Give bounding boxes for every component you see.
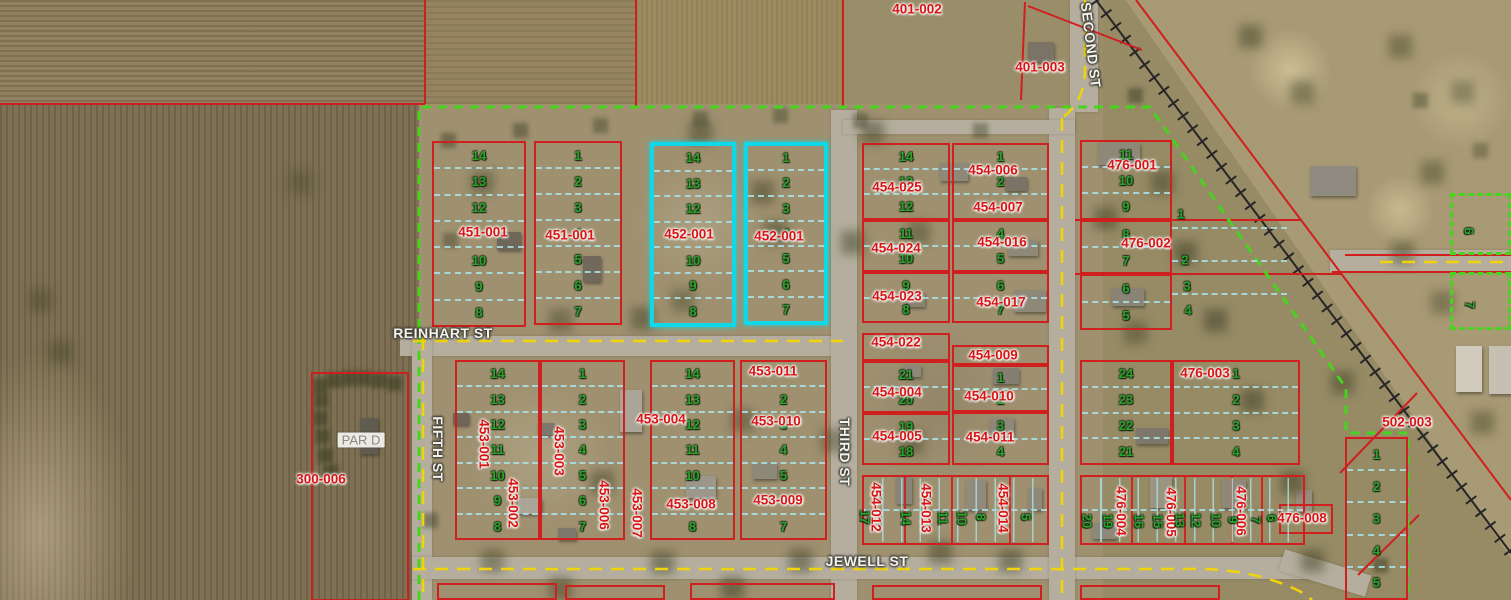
- lot-number: 6: [579, 493, 586, 508]
- parcel-block[interactable]: 65: [1080, 274, 1172, 330]
- parcel-block[interactable]: [565, 585, 665, 600]
- lot-row: 7: [742, 513, 825, 538]
- lot-number: 9: [1226, 516, 1241, 523]
- parcel-id-label[interactable]: 454-023: [872, 289, 922, 304]
- parcel-id-label[interactable]: 401-003: [1015, 60, 1065, 75]
- parcel-block[interactable]: [1080, 585, 1220, 600]
- parcel-id-label[interactable]: 451-001: [458, 225, 508, 240]
- lot-row: 9: [1082, 192, 1170, 218]
- lot-number: 14: [899, 149, 913, 164]
- parcel-id-label[interactable]: 476-006: [1234, 486, 1249, 536]
- parcel-id-label[interactable]: 300-006: [296, 472, 346, 487]
- lot-row: 3: [748, 195, 824, 220]
- parcel-id-label[interactable]: 454-006: [968, 163, 1018, 178]
- lot-row: 1: [748, 146, 824, 169]
- lot-row: 11: [652, 436, 733, 461]
- street-name-label: FIFTH ST: [430, 416, 446, 481]
- parcel-id-label[interactable]: 454-010: [964, 389, 1014, 404]
- parcel-id-label[interactable]: 453-002: [506, 478, 521, 528]
- parcel-id-label[interactable]: 453-009: [753, 493, 803, 508]
- lot-row: 5: [742, 462, 825, 487]
- lot-number: 3: [1232, 418, 1239, 433]
- lot-number: 9: [494, 493, 501, 508]
- lot-number: 18: [899, 444, 913, 459]
- parcel-id-label[interactable]: 452-001: [754, 229, 804, 244]
- lot-row: 6: [536, 271, 620, 297]
- lot-row: 8: [457, 513, 538, 538]
- lot-number: 8: [689, 519, 696, 534]
- lot-row: 2: [1174, 386, 1298, 412]
- lot-number: 7: [1122, 253, 1129, 268]
- lot-number: 12: [1189, 513, 1204, 527]
- parcel-id-label[interactable]: 454-016: [977, 235, 1027, 250]
- parcel-block[interactable]: 12345: [1345, 437, 1408, 600]
- lot-number: 7: [579, 519, 586, 534]
- lot-number: 12: [490, 417, 504, 432]
- lot-number: 14: [899, 511, 914, 525]
- lot-row: 12: [434, 194, 524, 220]
- lot-row: 6: [748, 270, 824, 295]
- lot-row: 12: [457, 411, 538, 436]
- parcel-block[interactable]: 23457: [740, 360, 827, 540]
- parcel-id-label[interactable]: 476-003: [1180, 366, 1230, 381]
- lot-number: 16: [1132, 514, 1147, 528]
- parcel-id-label[interactable]: 454-024: [871, 241, 921, 256]
- lot-row: 14: [652, 362, 733, 385]
- lot-number: 4: [1373, 543, 1380, 558]
- lot-number: 7: [780, 519, 787, 534]
- lot-number: 3: [574, 200, 581, 215]
- lot-number: 2: [579, 392, 586, 407]
- parcel-id-label[interactable]: 502-003: [1382, 415, 1432, 430]
- parcel-block[interactable]: 14131211108: [650, 360, 735, 540]
- lot-number: 13: [472, 174, 486, 189]
- parcel-id-label[interactable]: 476-001: [1107, 158, 1157, 173]
- lot-number: 1: [579, 366, 586, 381]
- lot-number: 14: [686, 150, 700, 165]
- lot-number: 10: [472, 253, 486, 268]
- lot-number: 10: [685, 468, 699, 483]
- parcel-block[interactable]: [437, 583, 557, 600]
- lot-row: 6: [1082, 276, 1170, 301]
- lot-number: 7: [574, 304, 581, 319]
- lot-number: 10: [1209, 513, 1224, 527]
- lot-number: 23: [1119, 392, 1133, 407]
- lot-row: 5: [748, 245, 824, 270]
- lot-row: 12: [654, 195, 732, 221]
- lot-number: 12: [899, 199, 913, 214]
- lot-number: 20: [1080, 514, 1095, 528]
- parcel-id-label[interactable]: 453-011: [749, 364, 798, 379]
- lot-number: 5: [1019, 513, 1034, 520]
- lot-row: 13: [434, 167, 524, 193]
- lot-number: 8: [974, 513, 989, 520]
- lot-number: 14: [685, 366, 699, 381]
- lot-number: 2: [782, 175, 789, 190]
- lot-number: 2: [1181, 253, 1188, 268]
- parcel-id-label[interactable]: 453-006: [597, 480, 612, 530]
- lot-number: 2: [1373, 479, 1380, 494]
- street-name-label: REINHART ST: [393, 325, 493, 341]
- lot-row: 10: [652, 462, 733, 487]
- parcel-id-label[interactable]: 454-009: [968, 348, 1018, 363]
- parcel-id-label[interactable]: 453-001: [477, 419, 492, 469]
- lot-row: 11: [457, 436, 538, 461]
- lot-row: 2: [742, 385, 825, 410]
- lot-row: 21: [864, 363, 948, 386]
- lot-number: 6: [782, 277, 789, 292]
- lot-number: 12: [686, 201, 700, 216]
- map-canvas[interactable]: 1413121098123456714131210981234567141312…: [0, 0, 1511, 600]
- parcel-id-label[interactable]: 454-017: [976, 295, 1026, 310]
- lot-number: 11: [686, 442, 700, 457]
- parcel-id-label[interactable]: 453-003: [552, 426, 567, 476]
- parcel-id-label[interactable]: 454-005: [872, 429, 922, 444]
- lot-row: 3: [536, 193, 620, 219]
- parcel-block[interactable]: 141312111098: [455, 360, 540, 540]
- lot-number: 13: [1173, 513, 1188, 527]
- lot-number: 6: [1122, 281, 1129, 296]
- lot-number: 14: [490, 366, 504, 381]
- lot-number: 5: [782, 251, 789, 266]
- lot-number: 6: [1265, 514, 1280, 521]
- lot-row: 21: [1082, 437, 1170, 463]
- lot-number: 13: [490, 392, 504, 407]
- lot-number: 24: [1119, 366, 1133, 381]
- lot-number: 4: [579, 442, 586, 457]
- lot-row: 7: [748, 296, 824, 321]
- parcel-block[interactable]: 11109: [1080, 140, 1172, 220]
- lot-number: 10: [955, 511, 970, 525]
- lot-number: 10: [1119, 173, 1133, 188]
- parcel-id-label[interactable]: 401-002: [892, 2, 942, 17]
- lot-number: 9: [689, 278, 696, 293]
- parcel-id-label[interactable]: 454-022: [871, 335, 921, 350]
- lot-number: 9: [1122, 199, 1129, 214]
- lot-row: [1172, 196, 1287, 227]
- lot-number: 1: [1373, 447, 1380, 462]
- lot-row: 3: [1347, 501, 1406, 533]
- lot-number: 7: [1249, 516, 1264, 523]
- lot-number: 4: [780, 442, 787, 457]
- parcel-id-label[interactable]: 454-014: [996, 483, 1011, 533]
- parcel-block[interactable]: 24232221: [1080, 360, 1172, 465]
- lot-number: 10: [490, 468, 504, 483]
- lot-number: 22: [1119, 418, 1133, 433]
- lot-row: 2: [536, 167, 620, 193]
- parcel-id-label[interactable]: 476-002: [1121, 236, 1171, 251]
- lot-number: 8: [475, 305, 482, 320]
- lot-number: 1: [997, 370, 1004, 385]
- lot-number: 3: [782, 201, 789, 216]
- lot-number: 4: [1184, 303, 1191, 318]
- lot-row: 8: [654, 297, 732, 323]
- lot-row: 9: [457, 487, 538, 512]
- lot-number: 13: [685, 392, 699, 407]
- parcel-overlay-layer: 1413121098123456714131210981234567141312…: [0, 0, 1511, 600]
- lot-number: 1: [1232, 366, 1239, 381]
- area-label: PAR D: [338, 433, 385, 448]
- lot-number: 7: [782, 302, 789, 317]
- lot-number: 4: [1232, 444, 1239, 459]
- lot-row: 14: [434, 143, 524, 167]
- lot-row: 4: [1347, 534, 1406, 566]
- lot-number: 3: [579, 417, 586, 432]
- lot-number: 2: [780, 392, 787, 407]
- parcel-id-label[interactable]: 476-004: [1114, 486, 1129, 536]
- street-name-label: THIRD ST: [837, 418, 853, 487]
- lot-row: 6: [954, 274, 1047, 297]
- lot-row: 4: [742, 436, 825, 461]
- lot-row: 14: [654, 146, 732, 170]
- lot-number: 4: [997, 444, 1004, 459]
- lot-row: 3: [1174, 412, 1298, 438]
- lot-number: 10: [686, 253, 700, 268]
- parcel-id-label[interactable]: 451-001: [545, 228, 595, 243]
- lot-number: 12: [685, 417, 699, 432]
- lot-number: 11: [491, 442, 505, 457]
- lot-number: 8: [902, 302, 909, 317]
- lot-row: 9: [654, 272, 732, 298]
- parcel-id-label[interactable]: 454-012: [869, 482, 884, 532]
- lot-number: 14: [472, 148, 486, 163]
- lot-number: 21: [1119, 444, 1133, 459]
- parcel-id-label[interactable]: 454-007: [973, 200, 1023, 215]
- parcel-block[interactable]: [1450, 272, 1511, 330]
- parcel-id-label[interactable]: 453-008: [666, 497, 716, 512]
- lot-number: 5: [579, 468, 586, 483]
- lot-number: 1: [1177, 207, 1184, 222]
- lot-number: 2: [574, 174, 581, 189]
- lot-number: 15: [1151, 514, 1166, 528]
- parcel-block[interactable]: [1450, 193, 1511, 255]
- lot-number: 17: [858, 510, 873, 524]
- lot-row: 1: [954, 367, 1047, 388]
- lot-row: 5: [536, 245, 620, 271]
- lot-number: 2: [1232, 392, 1239, 407]
- lot-number: 19: [1101, 514, 1116, 528]
- lot-row: 1: [542, 362, 623, 385]
- parcel-id-label[interactable]: 454-013: [919, 483, 934, 533]
- street-name-label: SECOND ST: [1078, 1, 1104, 88]
- lot-number: 12: [472, 200, 486, 215]
- lot-number: 7: [1463, 301, 1478, 308]
- parcel-block[interactable]: [690, 583, 835, 600]
- lot-row: 23: [1082, 386, 1170, 412]
- lot-number: 5: [1373, 575, 1380, 590]
- lot-row: 12: [864, 193, 948, 218]
- lot-number: 11: [899, 226, 913, 241]
- parcel-id-label[interactable]: 453-004: [636, 412, 686, 427]
- parcel-id-label[interactable]: 454-025: [872, 180, 922, 195]
- lot-row: 24: [1082, 362, 1170, 386]
- lot-row: 5: [1347, 566, 1406, 598]
- lot-row: 8: [652, 513, 733, 538]
- lot-row: 13: [457, 385, 538, 410]
- lot-number: 13: [686, 176, 700, 191]
- parcel-block[interactable]: [872, 585, 1042, 600]
- parcel-id-label[interactable]: 453-010: [751, 414, 801, 429]
- lot-row: 22: [1082, 412, 1170, 438]
- lot-row: 1: [536, 143, 620, 167]
- lot-row: 13: [652, 385, 733, 410]
- lot-row: 2: [542, 385, 623, 410]
- lot-number: 11: [936, 511, 951, 525]
- lot-number: 6: [997, 278, 1004, 293]
- street-name-label: JEWELL ST: [826, 553, 909, 569]
- lot-row: 8: [434, 299, 524, 325]
- parcel-id-label[interactable]: 453-007: [630, 488, 645, 538]
- lot-row: 2: [1347, 469, 1406, 501]
- lot-number: 5: [997, 251, 1004, 266]
- lot-row: 9: [434, 272, 524, 298]
- lot-row: [1172, 227, 1287, 260]
- lot-number: 5: [1122, 308, 1129, 323]
- parcel-id-label[interactable]: 454-004: [872, 385, 922, 400]
- lot-number: 1: [574, 148, 581, 163]
- lot-row: 14: [457, 362, 538, 385]
- parcel-id-label[interactable]: 452-001: [664, 227, 714, 242]
- lot-number: 9: [475, 279, 482, 294]
- lot-row: 2: [748, 169, 824, 194]
- lot-number: 6: [1462, 227, 1477, 234]
- lot-number: 3: [1373, 511, 1380, 526]
- lot-number: 8: [689, 304, 696, 319]
- lot-number: 5: [780, 468, 787, 483]
- lot-number: 6: [574, 278, 581, 293]
- lot-row: 10: [457, 462, 538, 487]
- lot-row: 13: [654, 170, 732, 196]
- lot-number: 8: [494, 519, 501, 534]
- lot-number: 5: [574, 252, 581, 267]
- lot-row: 4: [1174, 437, 1298, 463]
- parcel-id-label[interactable]: 476-008: [1277, 511, 1327, 526]
- lot-row: 5: [1082, 301, 1170, 328]
- parcel-id-label[interactable]: 454-011: [966, 430, 1015, 445]
- lot-number: 3: [1183, 279, 1190, 294]
- lot-row: 7: [536, 297, 620, 323]
- lot-number: 1: [782, 150, 789, 165]
- lot-row: 10: [434, 246, 524, 272]
- lot-row: 14: [864, 145, 948, 168]
- lot-row: 1: [1347, 439, 1406, 469]
- lot-row: 10: [654, 246, 732, 272]
- lot-number: 21: [899, 367, 913, 382]
